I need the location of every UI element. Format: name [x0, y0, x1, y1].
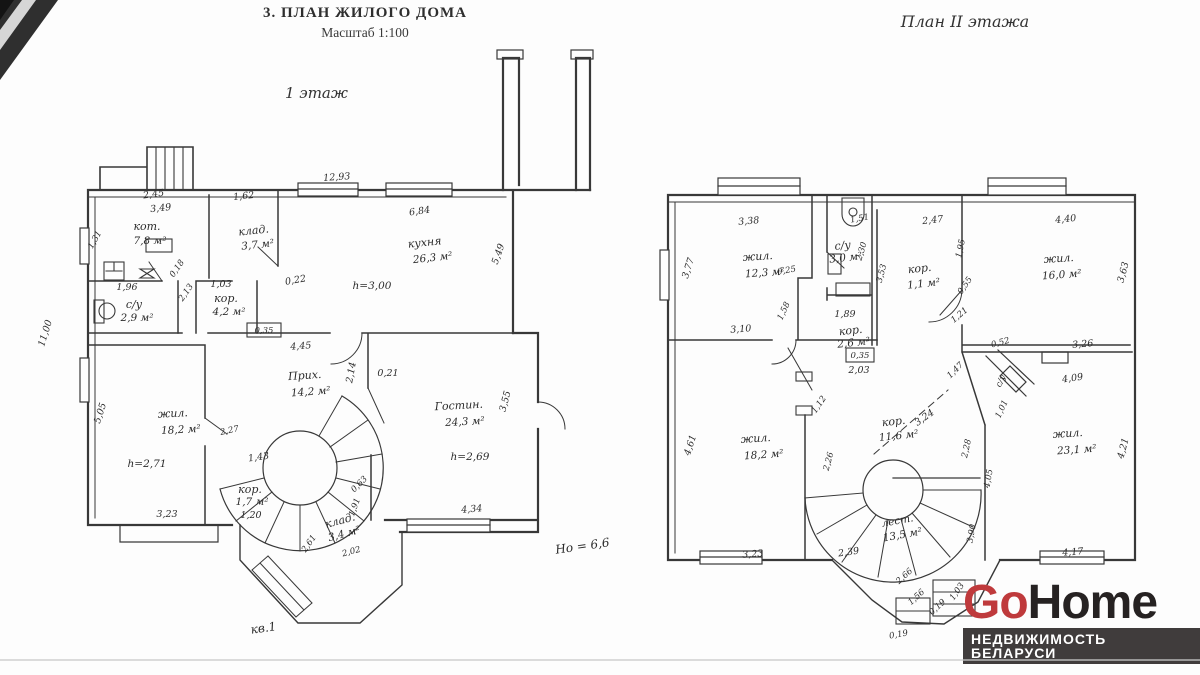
room-name-label: с/у — [126, 298, 143, 311]
room-name-label: жил. — [740, 431, 771, 446]
floor1-labels: 2,45 3,49 1,62 12,93 6,84 0,22 5,49 1,96… — [36, 171, 610, 637]
room-area-label: 3,0 м² — [829, 250, 863, 265]
dim-label: 0,18 — [168, 258, 187, 280]
dim-label: 3,63 — [1116, 261, 1132, 284]
dim-label: 2,14 — [344, 361, 359, 385]
dim-label: 0,21 — [377, 368, 398, 379]
floor2-windows — [660, 178, 1104, 564]
room-name-label: кор. — [214, 292, 238, 305]
building-height-note: Hо = 6,6 — [554, 535, 611, 557]
dim-label: 4,40 — [1054, 213, 1077, 226]
room-name-label: кор. — [907, 261, 932, 276]
scan-edge-line — [0, 659, 1200, 661]
dim-label: 1,62 — [233, 190, 255, 203]
floor1-label: 1 этаж — [285, 84, 348, 102]
dim-label: 4,34 — [460, 503, 483, 516]
floor1-plan: 2,45 3,49 1,62 12,93 6,84 0,22 5,49 1,96… — [36, 50, 610, 637]
room-name-label: Прих. — [287, 368, 322, 383]
dim-label: 3,26 — [1072, 338, 1094, 351]
dim-label: 5,49 — [490, 242, 508, 266]
dim-label: 1,96 — [116, 282, 137, 293]
dim-label: 2,45 — [141, 188, 164, 202]
dim-label: 4,21 — [1115, 437, 1131, 461]
floorplan-svg: 2,45 3,49 1,62 12,93 6,84 0,22 5,49 1,96… — [0, 0, 1200, 675]
dim-label: 0,55 — [956, 275, 975, 296]
dim-label: 2,61 — [299, 533, 319, 555]
dim-label: 3,10 — [730, 323, 752, 335]
floor2-plan: 3,38 1,51 2,47 4,40 3,77 0,25 1,58 3,10 … — [660, 178, 1135, 642]
dim-label: 0,19 — [888, 628, 909, 641]
dim-label: 1,89 — [834, 309, 855, 320]
dim-label: 3,49 — [150, 202, 172, 215]
room-area-label: 4,2 м² — [212, 306, 246, 318]
room-name-label: кот. — [133, 220, 160, 233]
dim-label: 1,21 — [949, 306, 970, 326]
dim-label: 1,12 — [810, 394, 829, 415]
dim-label: 3,55 — [498, 390, 514, 413]
dim-label: 3,23 — [742, 548, 764, 560]
dim-label: 1,56 — [906, 587, 927, 607]
logo-home-text: Home — [1028, 576, 1157, 629]
dim-label: 4,05 — [982, 468, 995, 489]
room-name-label: клад. — [238, 222, 270, 238]
room-area-label: 26,3 м² — [411, 250, 453, 266]
dim-label: 2,66 — [894, 566, 916, 587]
dim-label: 3,24 — [913, 407, 937, 428]
room-name-label: Гостин. — [433, 398, 483, 414]
dim-label: 6,84 — [408, 205, 430, 219]
room-area-label: 18,2 м² — [744, 448, 784, 463]
dim-label: 2,02 — [340, 545, 362, 560]
floor2-label: План II этажа — [870, 12, 1060, 31]
dim-label: 0,22 — [284, 273, 307, 288]
room-area-label: 1,7 м² — [236, 496, 269, 508]
dim-label: 4,09 — [1060, 372, 1083, 386]
room-area-label: 18,2 м² — [161, 423, 201, 437]
room-area-label: 23,1 м² — [1056, 443, 1097, 458]
room-area-label: 16,0 м² — [1042, 268, 1082, 283]
room-name-label: жил. — [1052, 426, 1083, 441]
dim-label: 3,38 — [738, 215, 760, 228]
dim-label: 2,28 — [960, 438, 974, 460]
dim-label: 4,45 — [289, 340, 312, 353]
room-name-label: кор. — [881, 414, 906, 429]
room-height-label: h=2,71 — [128, 458, 167, 470]
apartment-note: кв.1 — [250, 619, 277, 636]
room-name-label: жил. — [742, 249, 773, 264]
room-height-label: h=2,69 — [451, 451, 490, 463]
room-name-label: жил. — [1043, 251, 1074, 266]
room-height-label: h=3,00 — [353, 280, 392, 292]
dim-label: 4,17 — [1061, 546, 1085, 559]
dim-label: 2,13 — [176, 282, 196, 304]
room-area-label: 14,2 м² — [291, 385, 331, 400]
gohome-logo-text: GoHome — [963, 579, 1200, 627]
dim-label: 3,77 — [680, 256, 697, 280]
dim-label: 1,20 — [240, 510, 261, 521]
room-area-label: 11,6 м² — [878, 428, 919, 444]
room-area-label: 7,8 м² — [134, 235, 167, 247]
room-area-label: 1,1 м² — [907, 276, 941, 291]
scan-corner-artifact — [0, 0, 58, 80]
room-area-label: 2,9 м² — [120, 312, 154, 324]
dim-label: 2,47 — [921, 214, 945, 227]
dim-label: 12,93 — [323, 171, 351, 184]
dim-label: 1,03 — [210, 279, 231, 290]
room-area-label: 24,3 м² — [444, 415, 485, 429]
logo-go-text: Go — [963, 576, 1028, 629]
dim-label: 11,00 — [36, 319, 54, 348]
dim-label: 4,61 — [682, 433, 699, 457]
dim-label: 2,39 — [836, 546, 859, 560]
page-title: 3. ПЛАН ЖИЛОГО ДОМА — [180, 5, 550, 22]
dim-label: 1,43 — [247, 451, 269, 465]
scanned-floorplan-page: 2,45 3,49 1,62 12,93 6,84 0,22 5,49 1,96… — [0, 0, 1200, 675]
dim-label: 0,35 — [851, 351, 870, 361]
dim-label: 1,47 — [945, 360, 966, 381]
dim-label: 0,35 — [255, 326, 274, 336]
scale-note: Масштаб 1:100 — [180, 25, 550, 41]
dim-label: 0,63 — [349, 474, 369, 494]
dim-label: 0,52 — [990, 336, 1011, 351]
dim-label: 1,95 — [954, 238, 968, 259]
dim-label: 2,26 — [822, 450, 837, 472]
dim-label: 3,23 — [156, 509, 177, 520]
room-area-label: 12,3 м² — [745, 266, 785, 281]
room-name-label: кухня — [407, 234, 442, 250]
dim-label: 3,90 — [965, 523, 978, 544]
room-name-label: жил. — [157, 406, 188, 421]
dim-label: 1,51 — [849, 212, 869, 225]
dim-label: 1,01 — [994, 398, 1011, 419]
gohome-logo: GoHome НЕДВИЖИМОСТЬ БЕЛАРУСИ — [963, 579, 1200, 664]
dim-label: 2,27 — [218, 424, 240, 438]
dim-label: 1,58 — [776, 300, 793, 322]
room-area-label: 3,7 м² — [241, 237, 275, 252]
dim-label: 2,03 — [847, 365, 869, 376]
floor1-bay-porch — [240, 525, 402, 623]
room-name-label: кор. — [238, 483, 262, 496]
